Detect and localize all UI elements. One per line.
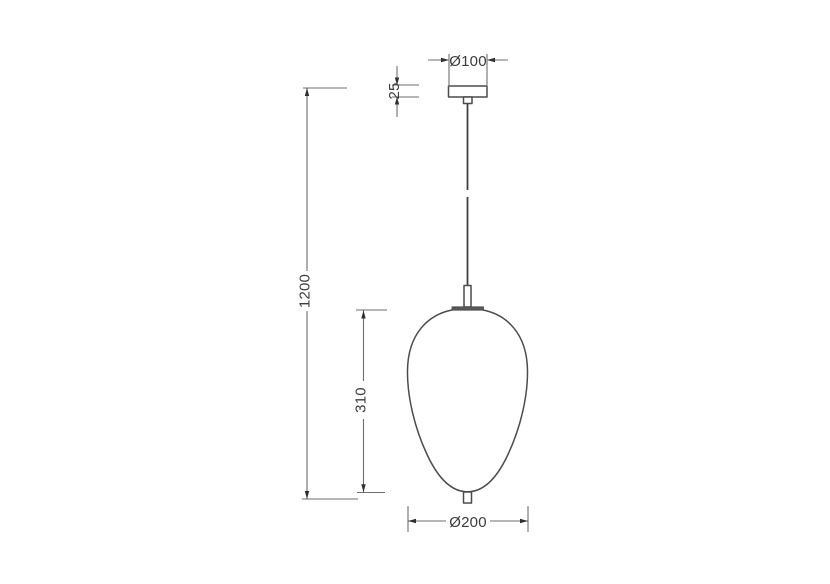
glass-shade xyxy=(407,310,527,492)
arrowhead-up xyxy=(361,311,365,319)
dim-label-canopy-height: 25 xyxy=(386,82,403,99)
dimension-shade-height: 310 xyxy=(352,310,387,493)
dimension-overall-drop: 1200 xyxy=(296,88,358,499)
dim-label-shade-height: 310 xyxy=(352,387,369,413)
arrowhead-right xyxy=(520,519,528,523)
shade-collar xyxy=(452,307,484,310)
arrowhead-down xyxy=(305,491,309,499)
bottom-finial xyxy=(464,492,472,503)
dimension-canopy-diameter: Ø100 xyxy=(428,53,508,85)
shade-stem xyxy=(464,286,471,308)
cord-connector xyxy=(464,97,473,104)
dim-label-shade-diameter: Ø200 xyxy=(449,514,487,531)
pendant-lamp-dimension-drawing: Ø100 25 1200 xyxy=(0,0,830,584)
arrowhead-left xyxy=(408,519,416,523)
arrowhead-down xyxy=(361,484,365,492)
drawing-canvas: Ø100 25 1200 xyxy=(0,0,830,584)
dim-label-canopy-diameter: Ø100 xyxy=(449,53,487,70)
arrowhead-left xyxy=(487,58,495,62)
lamp-outline xyxy=(407,86,527,503)
arrowhead-up xyxy=(305,88,309,96)
ceiling-canopy xyxy=(449,86,488,97)
arrowhead-right xyxy=(441,58,449,62)
dimension-canopy-height: 25 xyxy=(386,66,419,117)
dimension-shade-diameter: Ø200 xyxy=(408,506,528,532)
dim-label-overall-drop: 1200 xyxy=(296,274,313,308)
